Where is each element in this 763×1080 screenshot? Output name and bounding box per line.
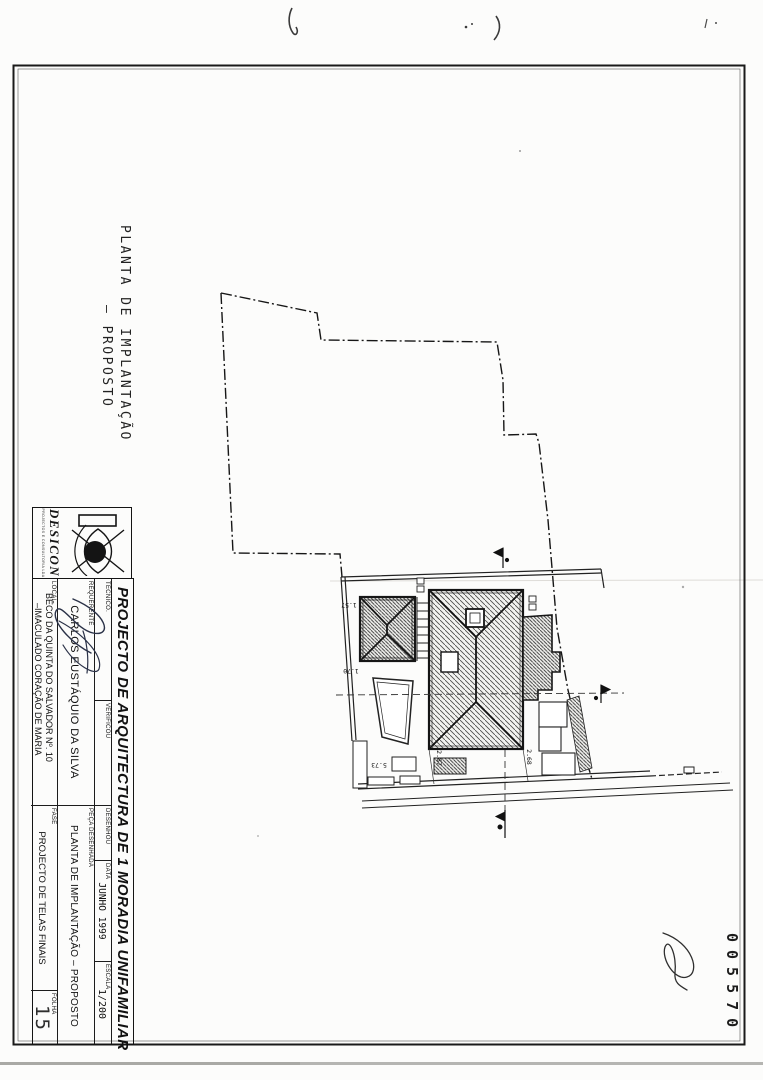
registry-stamp-number: 005570	[723, 933, 741, 1035]
field-desenhou-label: DESENHOU	[104, 808, 110, 844]
titleblock-local-row: LOCAL BÊCO DA QUINTA DO SALVADOR Nº. 10 …	[31, 579, 57, 1044]
field-requerente-label: REQUERENTE	[87, 581, 93, 626]
field-data-value: JUNHO 1999	[96, 861, 107, 961]
field-folha: FOLHA 15	[31, 990, 57, 1046]
field-local-line1: BÊCO DA QUINTA DO SALVADOR Nº. 10	[44, 593, 55, 805]
rotated-sheet-text-layer: PLANTA DE IMPLANTAÇÃO — PROPOSTO DESICON…	[0, 0, 763, 1080]
field-tecnico: TÉCNICO.	[95, 579, 111, 700]
field-escala-value: 1/200	[96, 962, 107, 1046]
field-data: DATA JUNHO 1999	[95, 860, 111, 961]
field-desenhou: DESENHOU	[95, 805, 111, 860]
sheet-title-line2: — PROPOSTO	[97, 305, 115, 442]
field-fase-label: FASE	[50, 808, 56, 825]
handwritten-paraph	[648, 925, 703, 1000]
title-block: PROJECTO DE ARQUITECTURA DE 1 MORADIA UN…	[32, 578, 134, 1045]
field-peca-label: PEÇA DESENHADA	[87, 808, 93, 867]
titleblock-project-row: PROJECTO DE ARQUITECTURA DE 1 MORADIA UN…	[111, 579, 133, 1044]
scanned-drawing-sheet: 5.73 2.87 2.68 1.70 1.57 PLANTA DE IMPLA…	[0, 0, 763, 1080]
field-folha-value: 15	[31, 991, 53, 1046]
sheet-title-line1: PLANTA DE IMPLANTAÇÃO	[115, 225, 133, 442]
field-tecnico-label: TÉCNICO.	[104, 581, 110, 612]
sheet-title: PLANTA DE IMPLANTAÇÃO — PROPOSTO	[97, 225, 133, 442]
field-requerente: REQUERENTE CARLOS EUSTÁQUIO DA SILVA	[58, 579, 94, 805]
field-fase-value: PROJECTO DE TELAS FINAIS	[36, 806, 47, 990]
field-local-line2: –IMACULADO CORAÇÃO DE MARIA	[33, 603, 44, 805]
company-subtext: PROJECTOS E CONSULTORIA LDA	[41, 508, 45, 578]
titleblock-people-row: TÉCNICO. VERIFICOU DESENHOU DATA JUNHO 1…	[94, 579, 111, 1044]
field-local: LOCAL BÊCO DA QUINTA DO SALVADOR Nº. 10 …	[31, 579, 57, 805]
project-title: PROJECTO DE ARQUITECTURA DE 1 MORADIA UN…	[112, 579, 133, 1044]
field-peca-value: PLANTA DE IMPLANTAÇÃO – PROPOSTO	[68, 806, 79, 1046]
eye-logo-icon	[67, 510, 129, 576]
field-verificou: VERIFICOU	[95, 700, 111, 805]
field-peca-desenhada: PEÇA DESENHADA PLANTA DE IMPLANTAÇÃO – P…	[58, 805, 94, 1046]
field-verificou-label: VERIFICOU	[104, 703, 110, 738]
field-escala: ESCALA 1/200	[95, 961, 111, 1046]
field-requerente-value: CARLOS EUSTÁQUIO DA SILVA	[68, 579, 80, 805]
titleblock-client-row: REQUERENTE CARLOS EUSTÁQUIO DA SILVA PEÇ…	[57, 579, 94, 1044]
field-fase: FASE PROJECTO DE TELAS FINAIS	[31, 805, 57, 990]
company-logo-box: DESICON PROJECTOS E CONSULTORIA LDA	[32, 507, 132, 579]
company-name: DESICON	[46, 508, 62, 578]
